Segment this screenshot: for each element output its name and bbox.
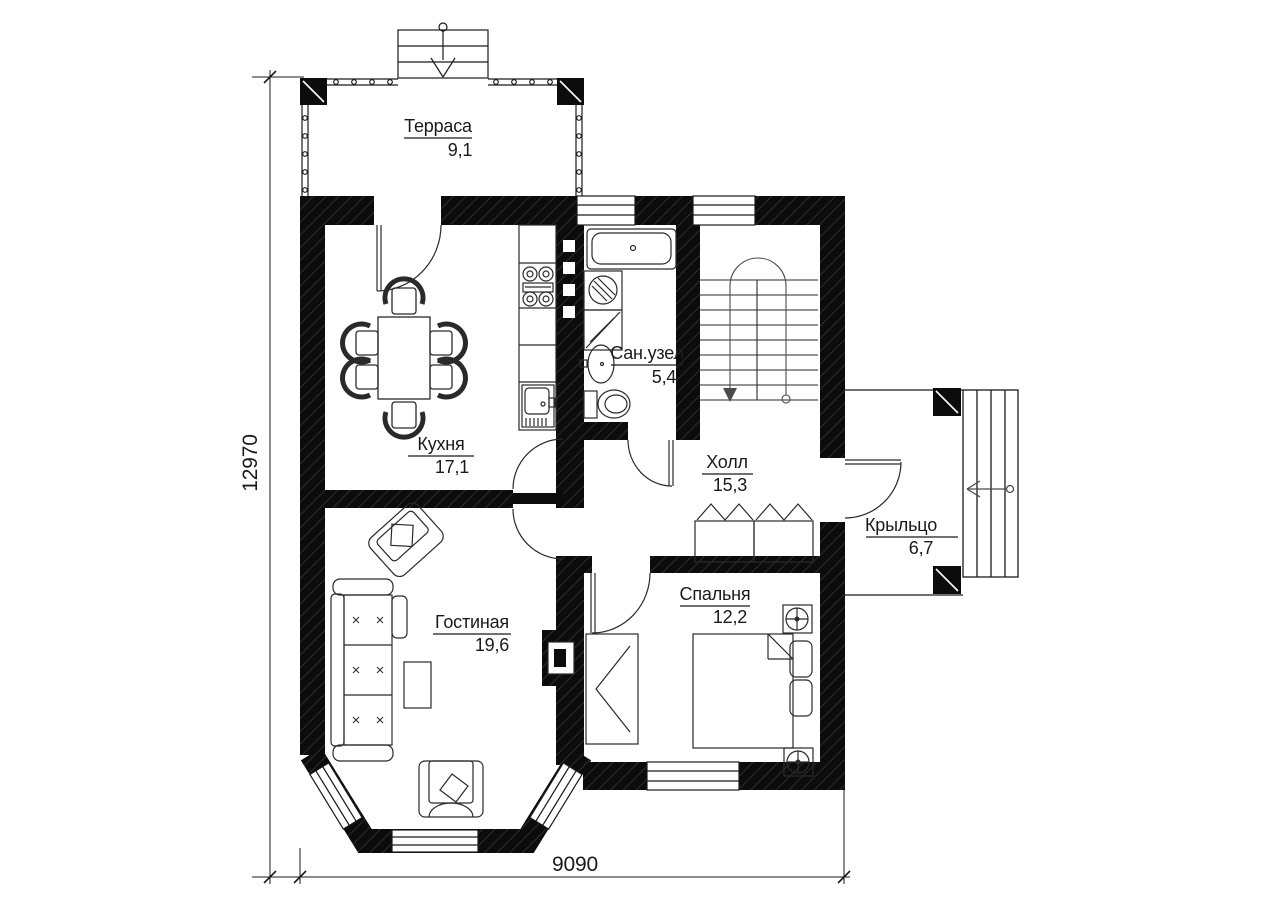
sofa-cushion-marks	[353, 617, 383, 723]
room-area: 9,1	[448, 140, 473, 160]
room-label-living: Гостиная 19,6	[433, 612, 511, 655]
room-name: Сан.узел	[610, 343, 684, 363]
railing-balusters	[303, 80, 582, 193]
room-name: Спальня	[680, 584, 751, 604]
room-area: 12,2	[713, 607, 747, 627]
room-area: 15,3	[713, 475, 747, 495]
dining-chair	[343, 324, 378, 362]
room-area: 19,6	[475, 635, 509, 655]
washbasin	[580, 345, 614, 383]
room-label-bathroom: Сан.узел 5,4	[610, 343, 684, 387]
kitchen-sink	[522, 385, 555, 427]
dining-chair	[343, 359, 378, 397]
door-kitchen-hall	[513, 439, 563, 559]
pillow	[381, 514, 423, 556]
porch-entry-arrow	[967, 481, 1014, 497]
dining-table	[378, 317, 430, 399]
window-stairs-top	[693, 196, 755, 225]
room-label-hall: Холл 15,3	[702, 452, 753, 495]
window-bay-bottom	[392, 830, 478, 852]
bathtub	[587, 229, 676, 269]
kitchen-counter	[519, 225, 556, 430]
dining-chair	[385, 279, 423, 314]
coffee-table	[404, 662, 431, 708]
pillow	[440, 774, 468, 802]
terrace-steps	[398, 23, 488, 78]
room-label-porch: Крыльцо 6,7	[865, 515, 958, 558]
floor-plan: 12970 9090 Терраса 9,1 Кухня 17,1 Сан.уз…	[0, 0, 1288, 907]
bed	[693, 634, 812, 748]
fireplace	[548, 642, 574, 674]
dining-table-set	[343, 279, 466, 437]
window-kitchen-top	[577, 196, 635, 225]
staircase	[700, 258, 818, 403]
room-label-terrace: Терраса 9,1	[404, 116, 473, 160]
washing-machine	[584, 271, 622, 310]
living-room-furniture	[331, 500, 574, 817]
room-area: 17,1	[435, 457, 469, 477]
room-label-bedroom: Спальня 12,2	[680, 584, 751, 627]
door-entrance	[845, 460, 901, 518]
dimension-height-label: 12970	[239, 434, 262, 491]
terrace-posts	[300, 78, 584, 105]
hall-wardrobe	[695, 504, 813, 562]
sofa	[331, 579, 407, 761]
dining-chair	[430, 324, 465, 362]
hanger-icon	[756, 504, 812, 520]
dining-chair	[385, 402, 423, 437]
toilet	[584, 390, 630, 418]
terrace	[300, 23, 584, 196]
porch-steps	[963, 390, 1018, 577]
nightstand	[783, 605, 812, 633]
room-area: 6,7	[909, 538, 934, 558]
door-bathroom	[628, 440, 673, 486]
porch-posts	[933, 388, 961, 594]
room-name: Холл	[706, 452, 748, 472]
room-area: 5,4	[652, 367, 677, 387]
dining-chair	[430, 359, 465, 397]
armchair-top	[365, 500, 446, 580]
door-bedroom	[591, 573, 650, 633]
room-name: Терраса	[404, 116, 473, 136]
room-name: Крыльцо	[865, 515, 937, 535]
bedroom-wardrobe	[586, 634, 638, 744]
window-bedroom-bottom	[647, 762, 739, 790]
bedroom-furniture	[586, 605, 813, 776]
room-label-kitchen: Кухня 17,1	[408, 434, 474, 477]
bay-wall	[311, 754, 581, 841]
stove	[523, 267, 553, 306]
porch	[845, 388, 1018, 595]
armchair-bottom	[419, 761, 483, 817]
floor-plan-canvas: 12970 9090 Терраса 9,1 Кухня 17,1 Сан.уз…	[0, 0, 1288, 907]
bathroom-fixtures	[580, 229, 676, 418]
room-name: Гостиная	[435, 612, 509, 632]
dimension-width-label: 9090	[552, 853, 598, 876]
room-name: Кухня	[417, 434, 464, 454]
hanger-icon	[697, 504, 753, 520]
